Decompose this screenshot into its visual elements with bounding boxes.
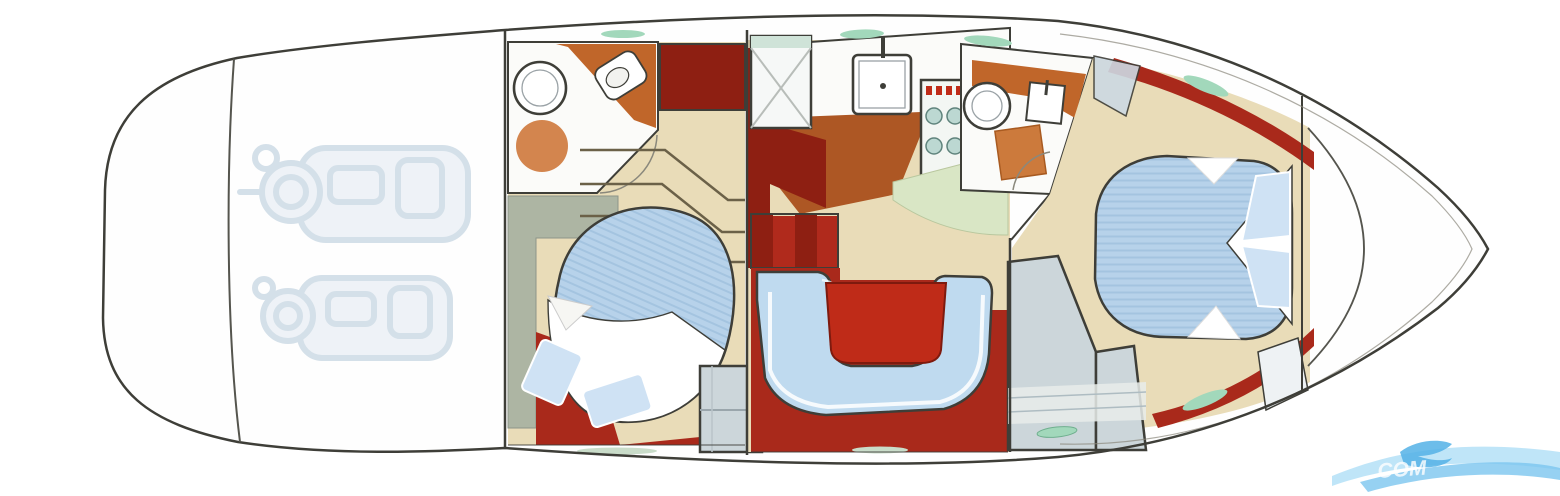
island-berth bbox=[1095, 156, 1292, 339]
burner-icon bbox=[926, 108, 942, 124]
aft-head-rug bbox=[516, 120, 568, 172]
companionway-steps bbox=[751, 214, 838, 268]
forward-head-basin bbox=[1026, 78, 1065, 123]
wardrobe-front-band bbox=[1008, 382, 1146, 424]
dinette-table bbox=[826, 283, 946, 363]
forward-head-sink bbox=[964, 83, 1010, 129]
aft-cabinet bbox=[660, 44, 745, 110]
watermark-text: COM bbox=[1377, 457, 1428, 483]
watermark: COM bbox=[1332, 441, 1560, 492]
aft-cabin bbox=[508, 42, 762, 455]
dinette bbox=[751, 268, 1008, 452]
deck-window bbox=[601, 30, 645, 38]
shower-stall bbox=[751, 36, 811, 128]
burner-icon bbox=[926, 138, 942, 154]
yacht-floor-plan: COM bbox=[0, 0, 1560, 496]
